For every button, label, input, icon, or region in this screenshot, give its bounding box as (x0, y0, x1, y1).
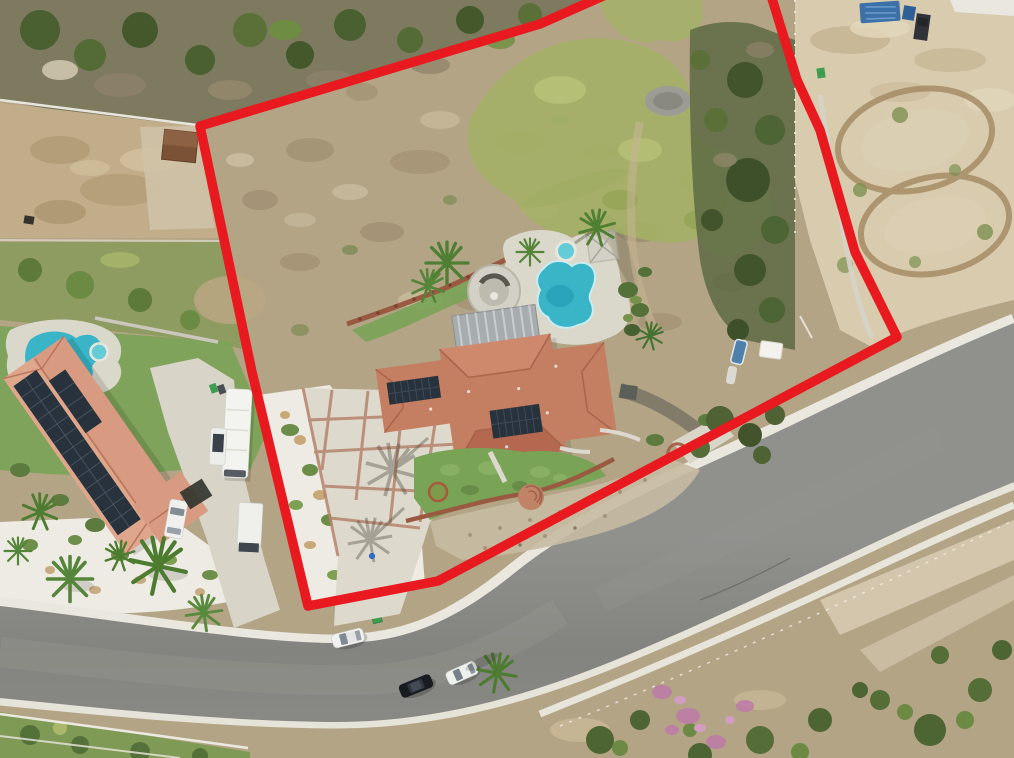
trash-bin-green (816, 67, 825, 78)
shed (162, 129, 199, 162)
box-truck (237, 502, 264, 552)
neighbor-spa (91, 344, 108, 361)
spa (557, 242, 576, 261)
blue-figure (369, 553, 375, 559)
aerial-photo (0, 0, 1014, 758)
van (209, 428, 227, 466)
planter-ring (429, 483, 447, 501)
